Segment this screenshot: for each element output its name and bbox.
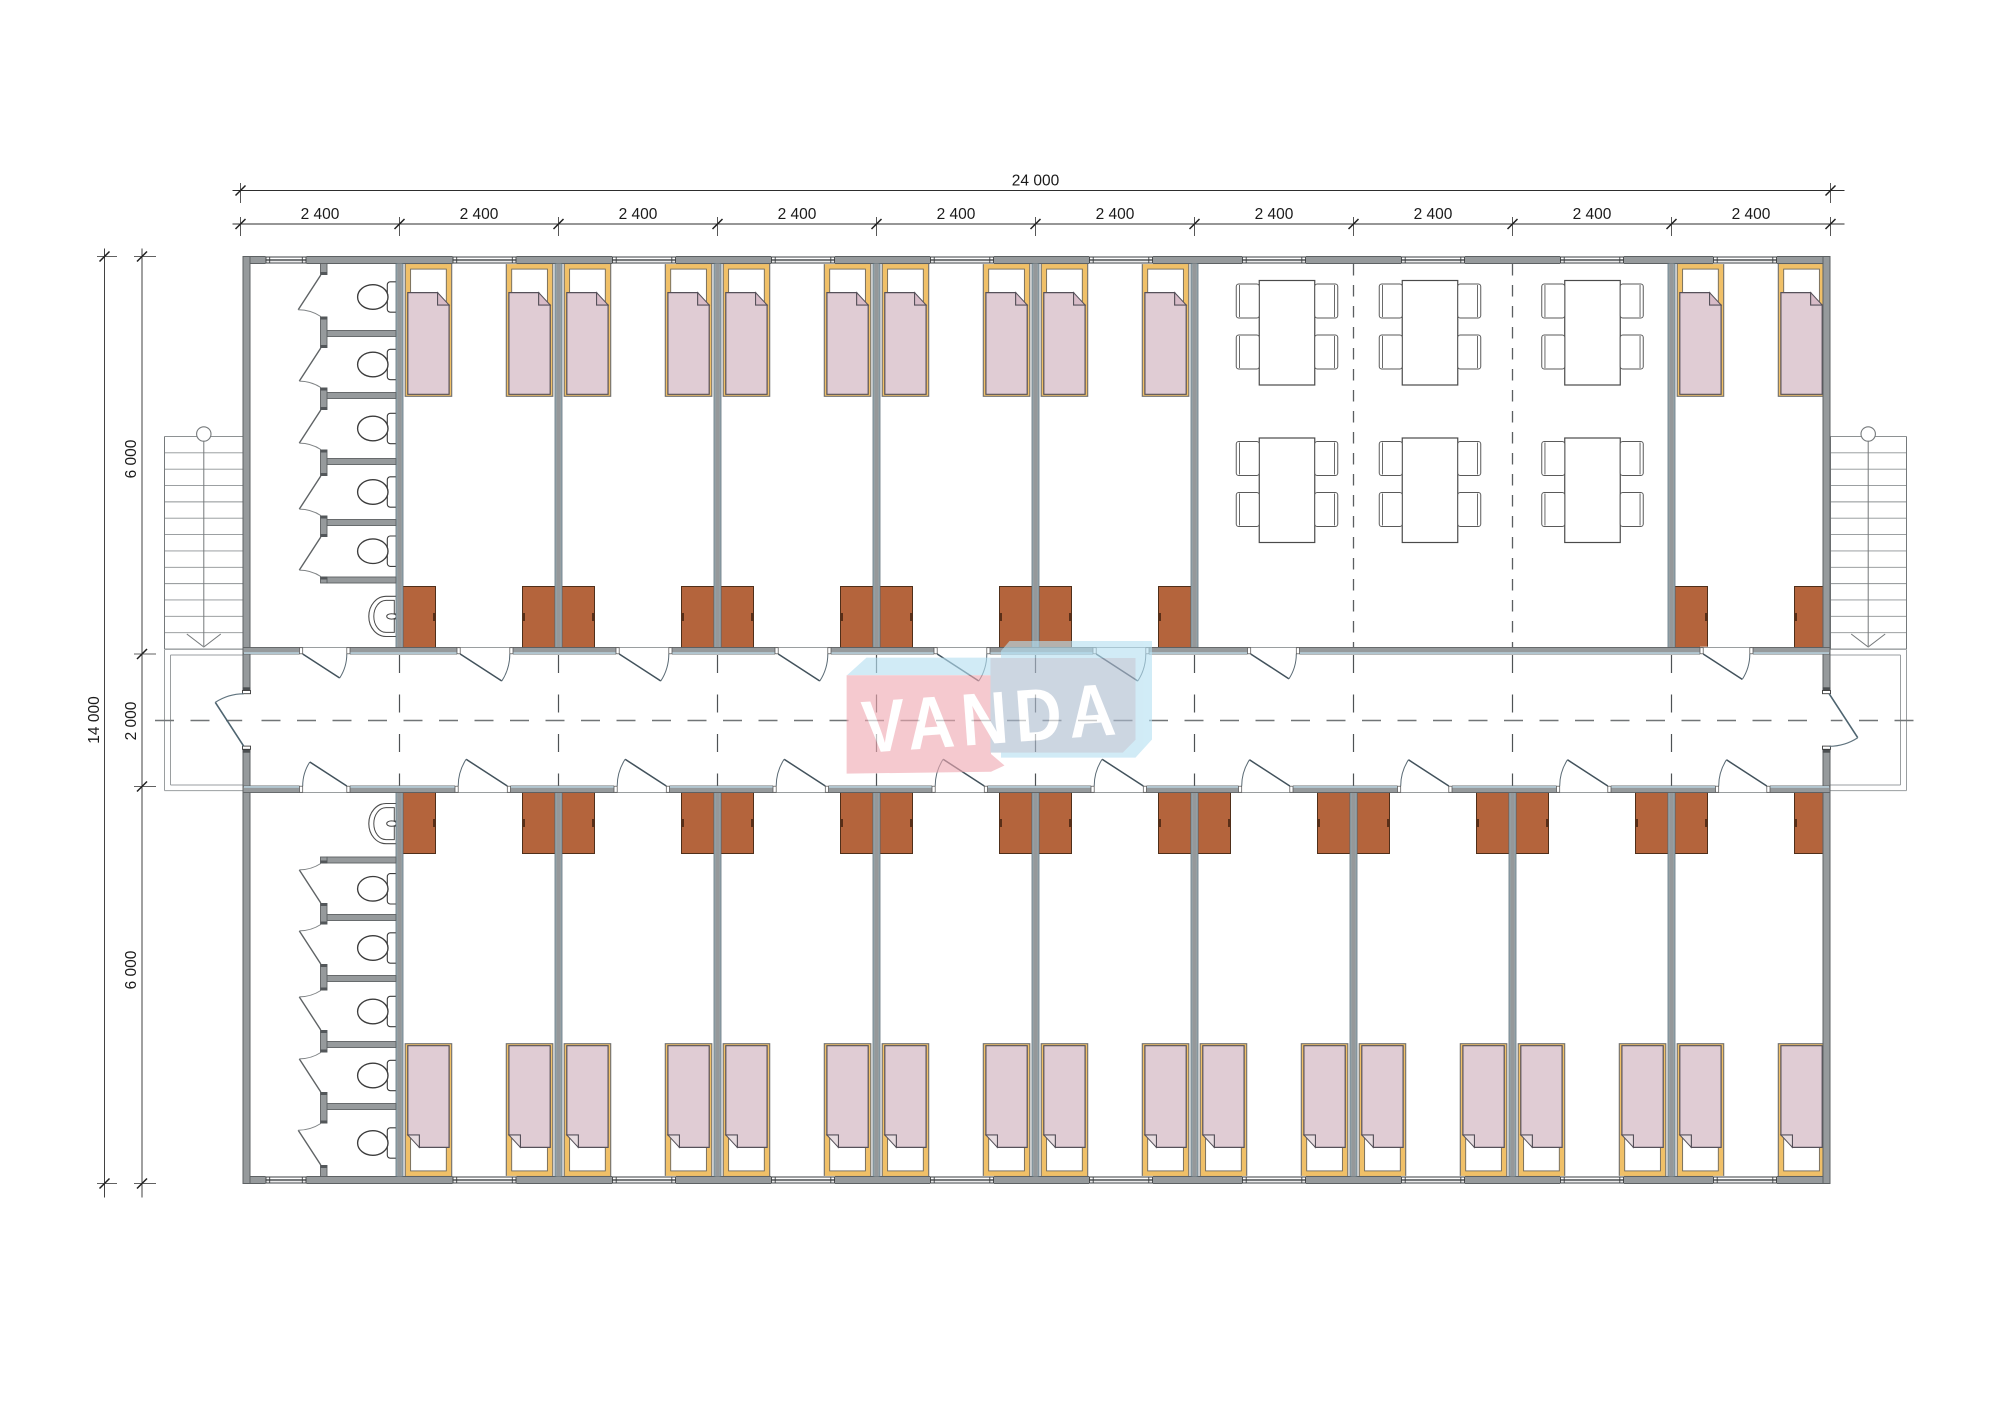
svg-text:2 400: 2 400 (1255, 206, 1294, 223)
svg-text:24 000: 24 000 (1012, 173, 1060, 190)
svg-text:14 000: 14 000 (86, 696, 103, 744)
svg-text:2 400: 2 400 (1732, 206, 1771, 223)
svg-text:6 000: 6 000 (123, 439, 140, 478)
svg-text:2 400: 2 400 (301, 206, 340, 223)
svg-text:2 400: 2 400 (1096, 206, 1135, 223)
svg-text:2 400: 2 400 (460, 206, 499, 223)
svg-text:2 400: 2 400 (937, 206, 976, 223)
svg-text:2 400: 2 400 (778, 206, 817, 223)
svg-text:2 400: 2 400 (1414, 206, 1453, 223)
svg-text:6 000: 6 000 (123, 950, 140, 989)
svg-text:2 400: 2 400 (1573, 206, 1612, 223)
svg-text:2 000: 2 000 (123, 701, 140, 740)
svg-text:2 400: 2 400 (619, 206, 658, 223)
